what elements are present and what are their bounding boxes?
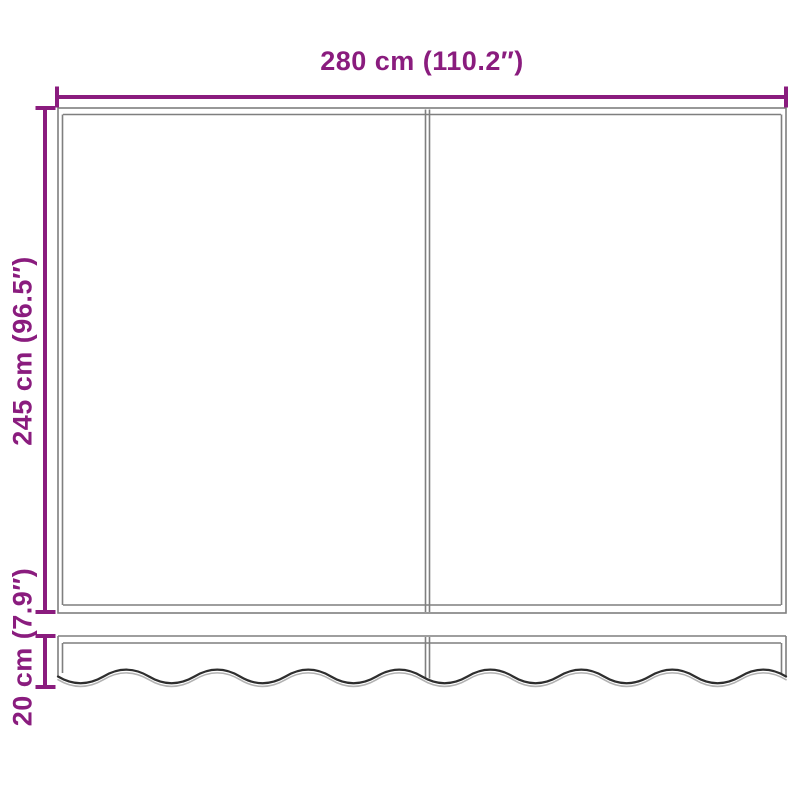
width-dimension-line [57,87,786,108]
awning-diagram-graphic [0,0,800,800]
height-dimension-label: 245 cm (96.5″) [8,256,39,446]
product-dimension-diagram: 280 cm (110.2″) 245 cm (96.5″) 20 cm (7.… [0,0,800,800]
valance-height-dimension-line [36,636,56,687]
valance-wave-shadow-line [58,673,786,687]
valance-height-dimension-label: 20 cm (7.9″) [8,568,39,727]
awning-valance [58,636,786,686]
width-dimension-label: 280 cm (110.2″) [58,46,786,77]
awning-main-panel [58,108,786,613]
height-dimension-line [36,108,56,612]
panel-outer-frame [58,108,786,613]
valance-wave-line [58,670,786,684]
